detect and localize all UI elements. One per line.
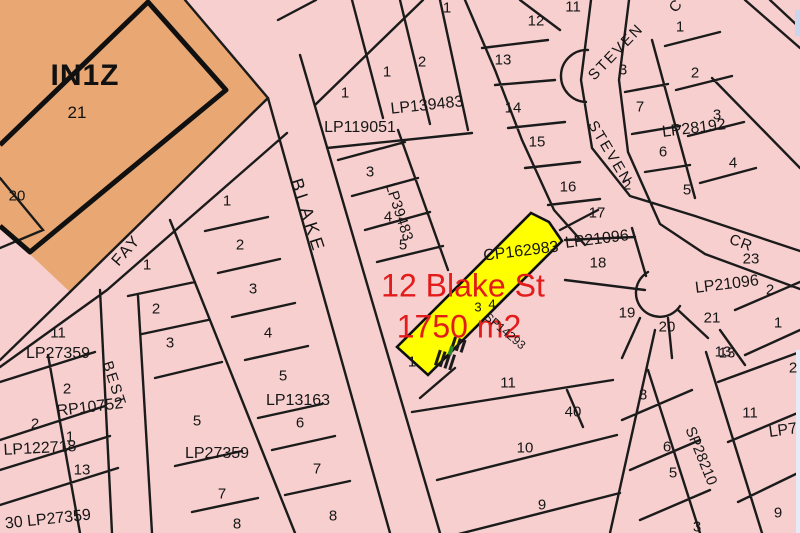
lot-number: 20 [659,320,676,335]
lot-number: 3 [713,108,721,123]
lot-number: 4 [264,326,272,341]
lot-number: 6 [659,145,667,160]
lot-number: 2 [418,55,426,70]
lot-number: 1 [676,20,684,35]
lot-number: 1 [774,316,782,331]
lot-number: 8 [233,517,241,532]
lot-number: 2 [31,417,39,432]
plan-label: CP162983 [482,239,559,264]
street-label: STEVEN [586,21,647,83]
lot-number: 17 [589,206,606,221]
lot-number: 11 [50,326,66,341]
street-label: STEVEN [585,118,635,187]
lot-number: 1 [443,1,451,16]
plan-label: LP21096 [564,228,630,252]
lot-number: 13 [74,463,91,478]
street-label: BLAKE [287,176,328,256]
lot-number: 2 [691,66,699,81]
lot-number: 2 [152,302,160,317]
plan-label: LP27359 [185,446,249,462]
lot-number: 1 [408,355,416,370]
lot-number: 11 [500,376,516,391]
lot-number: 21 [704,311,721,326]
street-label: CR [727,232,754,254]
lot-number: 2 [766,283,774,298]
lot-number: 7 [313,462,321,477]
lot-number: 5 [279,369,287,384]
lot-number: 5 [669,466,677,481]
lot-number: 6 [663,440,671,455]
lot-number: 2 [236,238,244,253]
lot-number: 13 [495,53,512,68]
lot-number: 5 [399,238,407,253]
lot-number: 13 [715,345,732,360]
lot-number: 1 [66,430,74,445]
street-label: C [666,0,685,15]
lot-number: 16 [560,180,577,195]
lot-number: 23 [743,252,760,267]
lot-number: 19 [619,306,636,321]
lot-number: 18 [590,256,607,271]
lot-number: 9 [774,506,782,521]
lot-number: 5 [683,183,691,198]
highlight-area-label: 1750 m2 [397,309,522,346]
map-canvas[interactable]: IN1Z 21 12 Blake St 1750 m2 BLAKEFAYBEST… [0,0,800,533]
lot-number: 11 [565,0,581,15]
lot-number: 4 [384,210,392,225]
lot-number: 6 [296,416,304,431]
lot-number: 1 [341,86,349,101]
plan-label: LP13163 [266,393,330,409]
lot-number: 3 [166,336,174,351]
plan-label: LP39483 [383,181,416,243]
lot-number: 3 [366,165,374,180]
lot-number: 8 [329,509,337,524]
lot-number: 2 [789,361,797,376]
lot-number: 40 [565,405,582,420]
lot-number: 4 [729,156,737,171]
zone-code-label: IN1Z [50,59,119,93]
lot-number: 2 [63,382,71,397]
lot-number: 10 [517,441,534,456]
lot-number: 5 [193,414,201,429]
lot-number: 3 [693,520,701,533]
plan-label: SP28210 [682,425,719,488]
plan-label: LP27359 [26,346,90,362]
zone-lot-label: 21 [68,103,87,123]
highlight-address-label: 12 Blake St [381,268,545,305]
plan-label: LP119051 [324,120,396,136]
lot-number: 14 [505,101,522,116]
lot-number: 1 [223,194,231,209]
plan-label: RP10752 [56,396,124,420]
map-labels-layer: IN1Z 21 12 Blake St 1750 m2 BLAKEFAYBEST… [0,0,800,533]
lot-number: 9 [538,498,546,513]
lot-number: 7 [636,100,644,115]
lot-number: 1 [143,258,151,273]
lot-number: 1 [383,65,391,80]
lot-number: 11 [742,406,758,421]
lot-number: 3 [249,282,257,297]
street-label: BEST [100,359,129,409]
street-label: FAY [109,233,144,270]
lot-number: 7 [218,487,226,502]
plan-label: LP7 [768,421,798,441]
plan-label: LP139483 [390,94,464,118]
lot-number: 2 [623,178,631,193]
plan-label: LP21096 [694,273,760,297]
lot-number: 3 [619,63,627,78]
lot-number: 12 [528,14,545,29]
lot-number: 15 [529,135,546,150]
lot-number: 20 [9,189,26,204]
plan-label: LP122718 [3,439,77,459]
lot-number: 8 [639,388,647,403]
plan-label: 30 LP27359 [4,508,92,533]
plan-label: LP28192 [661,117,727,141]
lot-number: 13 [719,346,736,361]
